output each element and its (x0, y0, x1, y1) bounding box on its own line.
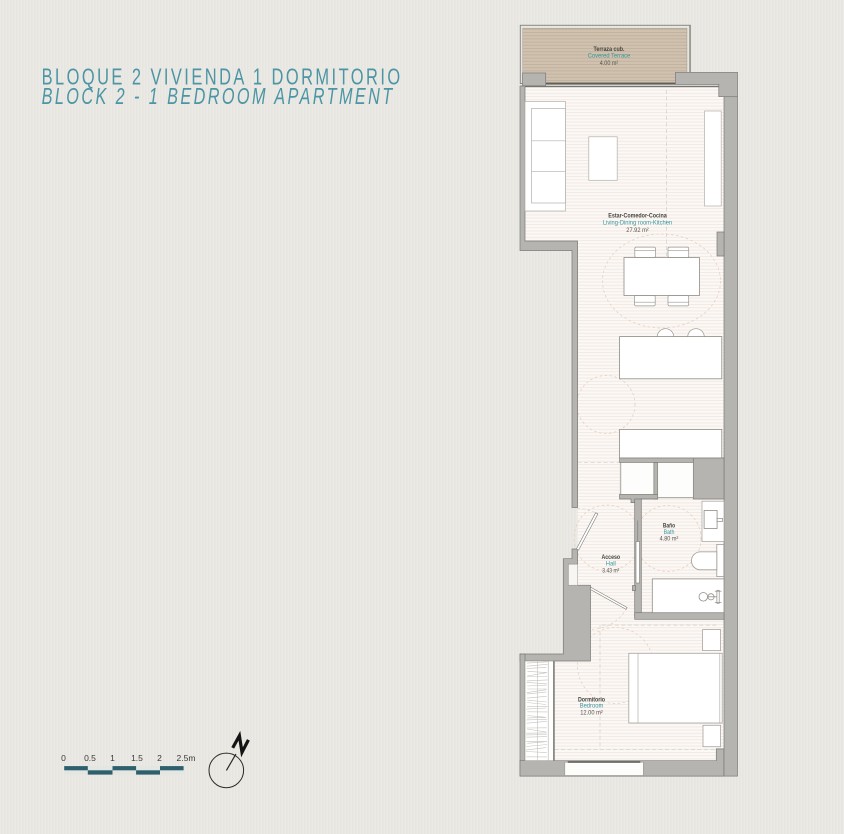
svg-text:27.92 m²: 27.92 m² (626, 227, 649, 234)
svg-text:4.80 m²: 4.80 m² (660, 535, 679, 542)
svg-text:2.5m: 2.5m (177, 753, 196, 763)
svg-text:BLOCK 2 - 1 BEDROOM APARTMENT: BLOCK 2 - 1 BEDROOM APARTMENT (42, 83, 395, 109)
svg-text:2: 2 (157, 753, 162, 763)
svg-text:0.5: 0.5 (84, 753, 96, 763)
svg-text:4.00 m²: 4.00 m² (600, 60, 619, 67)
svg-text:Estar-Comedor-Cocina: Estar-Comedor-Cocina (608, 212, 667, 219)
svg-text:1: 1 (110, 753, 115, 763)
svg-text:Living-Dining room-Kitchen: Living-Dining room-Kitchen (603, 219, 673, 226)
svg-text:12.00 m²: 12.00 m² (580, 710, 603, 717)
svg-text:0: 0 (61, 753, 66, 763)
svg-text:Bedroom: Bedroom (580, 702, 604, 709)
svg-text:3.43 m²: 3.43 m² (602, 567, 620, 574)
svg-text:Covered Terrace: Covered Terrace (588, 53, 631, 60)
svg-text:1.5: 1.5 (131, 753, 143, 763)
